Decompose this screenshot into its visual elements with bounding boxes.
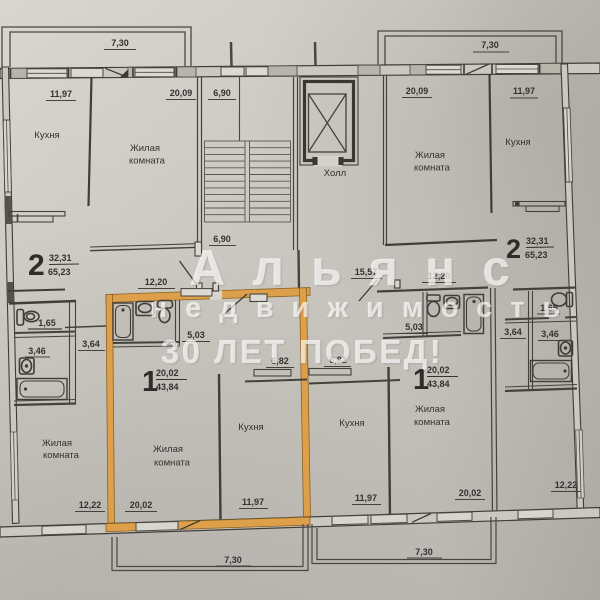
svg-text:1,65: 1,65 [38, 318, 56, 328]
svg-text:32,31: 32,31 [49, 253, 72, 263]
svg-text:3,64: 3,64 [504, 327, 522, 337]
svg-text:Жилая: Жилая [42, 438, 72, 449]
svg-text:Кухня: Кухня [505, 137, 530, 148]
svg-text:2: 2 [28, 249, 45, 282]
svg-text:43,84: 43,84 [156, 382, 179, 392]
svg-text:12,20: 12,20 [145, 277, 168, 287]
svg-text:Кухня: Кухня [34, 130, 59, 141]
svg-text:7,30: 7,30 [415, 547, 433, 557]
svg-text:Кухня: Кухня [238, 422, 263, 433]
svg-text:комната: комната [154, 458, 191, 469]
svg-text:20,09: 20,09 [170, 88, 193, 98]
svg-text:6,90: 6,90 [213, 88, 231, 98]
svg-text:7,30: 7,30 [224, 555, 242, 565]
svg-text:Холл: Холл [324, 168, 346, 179]
svg-text:20,09: 20,09 [406, 86, 429, 96]
svg-text:недвижимость: недвижимость [150, 292, 579, 324]
svg-text:3,46: 3,46 [28, 346, 46, 356]
svg-text:20,02: 20,02 [459, 488, 482, 498]
svg-text:комната: комната [43, 450, 80, 461]
svg-text:Жилая: Жилая [153, 444, 183, 455]
svg-text:комната: комната [414, 417, 451, 428]
svg-text:Альянс: Альянс [189, 240, 537, 296]
svg-text:комната: комната [414, 163, 451, 174]
svg-text:Жилая: Жилая [130, 143, 160, 154]
svg-text:7,30: 7,30 [111, 38, 129, 48]
svg-text:11,97: 11,97 [513, 86, 535, 96]
svg-text:65,23: 65,23 [48, 267, 71, 277]
svg-text:12,22: 12,22 [555, 480, 578, 490]
svg-text:Жилая: Жилая [415, 150, 445, 161]
svg-text:30 ЛЕТ ПОБЕД!: 30 ЛЕТ ПОБЕД! [161, 333, 443, 370]
svg-text:12,22: 12,22 [79, 500, 102, 510]
svg-text:Жилая: Жилая [415, 404, 445, 415]
svg-text:11,97: 11,97 [50, 89, 72, 99]
svg-text:7,30: 7,30 [481, 40, 499, 50]
svg-text:3,46: 3,46 [541, 329, 559, 339]
svg-text:20,02: 20,02 [130, 500, 153, 510]
svg-text:3,64: 3,64 [82, 339, 100, 349]
svg-text:Кухня: Кухня [339, 418, 364, 429]
svg-text:43,84: 43,84 [427, 379, 450, 389]
svg-text:11,97: 11,97 [242, 497, 264, 507]
svg-text:11,97: 11,97 [355, 493, 377, 503]
svg-text:комната: комната [129, 156, 166, 167]
